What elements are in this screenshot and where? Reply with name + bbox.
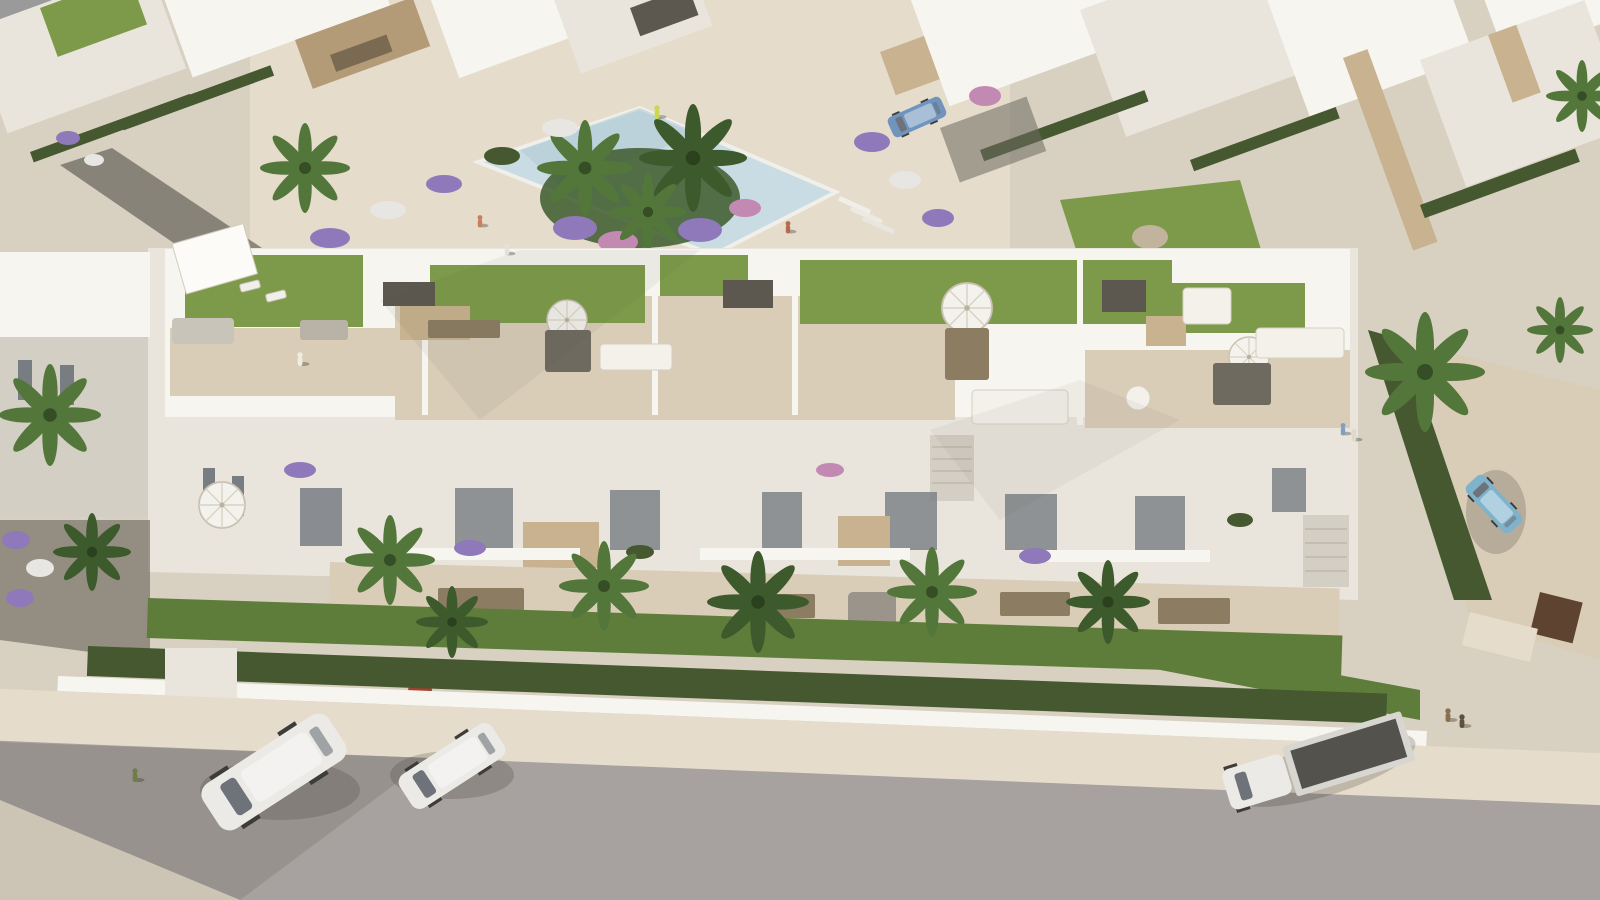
palm-tree: [0, 364, 101, 466]
stone-deck: [1146, 316, 1186, 346]
palm-tree: [53, 513, 131, 591]
parasol: [199, 482, 245, 528]
flower-bush: [6, 589, 34, 607]
day-bed: [1183, 288, 1231, 324]
palm-tree: [559, 541, 649, 631]
palm-tree: [1527, 297, 1593, 363]
outdoor-sofa: [300, 320, 348, 340]
palm-tree: [609, 173, 687, 251]
flower-bush: [84, 154, 104, 166]
flower-bush: [26, 559, 54, 577]
decorative-boulder: [1132, 225, 1168, 249]
parasol: [942, 283, 992, 333]
flower-bush: [553, 216, 597, 240]
palm-tree: [416, 586, 488, 658]
flower-bush: [729, 199, 761, 217]
outdoor-sofa-white: [600, 344, 672, 370]
bougainvillea-bush: [969, 86, 1001, 106]
flower-bed: [426, 175, 462, 193]
flower-bed: [854, 132, 890, 152]
palm-tree: [1066, 560, 1150, 644]
palm-tree: [1365, 312, 1485, 432]
outdoor-sofa-white: [1256, 328, 1344, 358]
shrub: [484, 147, 520, 165]
palm-tree: [260, 123, 350, 213]
aerial-render-canvas: [0, 0, 1600, 900]
outdoor-sofa: [172, 318, 234, 344]
flower-bush: [678, 218, 722, 242]
balcony-slab: [700, 548, 910, 560]
palm-tree: [707, 551, 809, 653]
flower-bush: [56, 131, 80, 145]
dining-set: [1213, 363, 1271, 405]
palm-tree: [639, 104, 747, 212]
roof-pergola: [723, 280, 773, 308]
dining-set: [945, 328, 989, 380]
flower-bed: [889, 171, 921, 189]
palm-tree: [887, 547, 977, 637]
flower-bush: [2, 531, 30, 549]
flower-bed: [310, 228, 350, 248]
flower-bed: [542, 119, 578, 137]
scene-svg: [0, 0, 1600, 900]
villa-roof: [0, 252, 150, 337]
roof-pergola: [1102, 280, 1146, 312]
palm-tree: [345, 515, 435, 605]
flower-bed: [922, 209, 954, 227]
flower-bed: [370, 201, 406, 219]
